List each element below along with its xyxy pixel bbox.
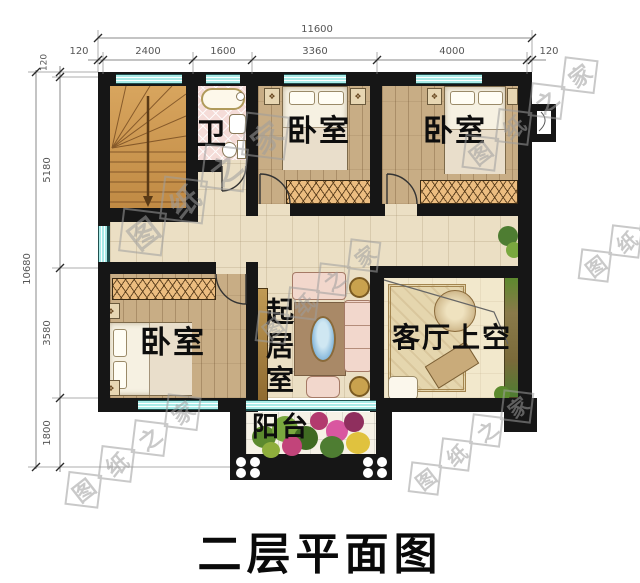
nightstand: ❖ [427,88,442,105]
dim-left-120: 120 [41,50,50,76]
wardrobe-bedroom-top-right [420,180,518,204]
dim-top-120-left: 120 [66,47,92,57]
railing-baluster [250,468,260,478]
dim-top-3360: 3360 [295,47,335,57]
window-top-stairs [116,74,182,84]
void-seat [388,376,418,400]
room-label-bedroom-bottom-left: 卧室 [140,328,206,359]
dim-left-1800: 1800 [43,413,53,453]
wardrobe-bedroom-top-mid [286,180,372,204]
wall-void-left [370,266,384,412]
bathtub-faucet [236,92,245,101]
railing-baluster [236,457,246,467]
wall-bedroom-divider [370,72,382,216]
dim-top-120-right: 120 [536,47,562,57]
page-title: 二层平面图 [0,518,640,582]
dim-total-height: 10680 [23,247,33,291]
nightstand: ❖ [350,88,366,105]
coffee-table [310,316,336,362]
dim-total-width: 11600 [295,25,339,35]
wall-void-top [370,266,518,278]
railing-baluster [363,468,373,478]
railing-baluster [377,457,387,467]
room-label-bedroom-top-mid: 卧室 [287,117,351,147]
dim-top-2400: 2400 [128,47,168,57]
dim-left-3580: 3580 [43,313,53,353]
balcony-sliding-door [246,400,376,411]
wall-bedrooms-bottom-b [417,204,518,216]
window-top-bath [206,74,240,84]
ottoman [306,376,340,398]
window-top-bedroom-right [416,74,482,84]
watermark-right-edge: 图 纸 之 家 [570,169,640,289]
dim-left-5180: 5180 [43,150,53,190]
sofa [344,300,372,372]
dim-top-4000: 4000 [432,47,472,57]
room-label-living-void: 客厅上空 [392,324,512,352]
window-top-bedroom-mid [284,74,346,84]
railing-baluster [236,468,246,478]
wall-bedroom3-top [98,262,216,274]
railing-baluster [377,468,387,478]
floor-plan-canvas: ❖ ❖ ❖ ❖ ❖ [0,0,640,583]
side-table [349,376,370,397]
dim-top-1600: 1600 [203,47,243,57]
wardrobe-bedroom-bottom-left [112,278,216,300]
room-label-balcony: 阳台 [252,414,310,441]
